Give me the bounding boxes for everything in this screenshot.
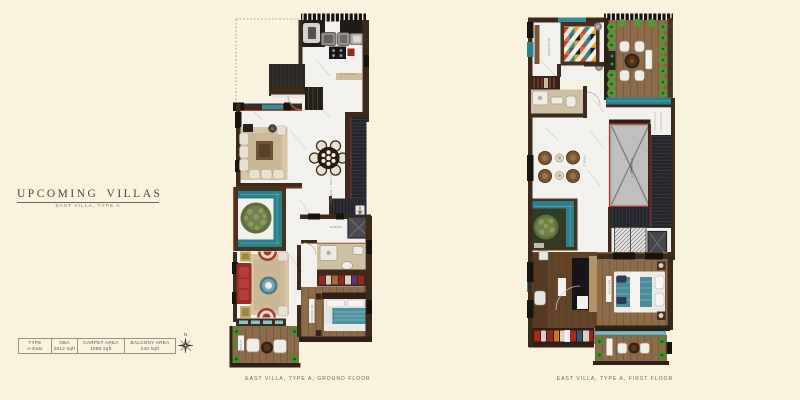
svg-text:SITOUT: SITOUT [239, 340, 243, 353]
svg-text:LIVING / DINING: LIVING / DINING [329, 173, 333, 204]
svg-text:DRESS: DRESS [330, 225, 342, 229]
svg-text:MASTER: MASTER [608, 280, 612, 295]
svg-text:VOID: VOID [629, 164, 633, 173]
svg-text:BEDROOM: BEDROOM [310, 305, 314, 323]
svg-text:KITCHEN: KITCHEN [340, 72, 356, 76]
svg-text:FAMILY: FAMILY [583, 155, 587, 167]
svg-text:DECK: DECK [657, 52, 661, 62]
svg-text:BEDROOM: BEDROOM [547, 38, 551, 56]
